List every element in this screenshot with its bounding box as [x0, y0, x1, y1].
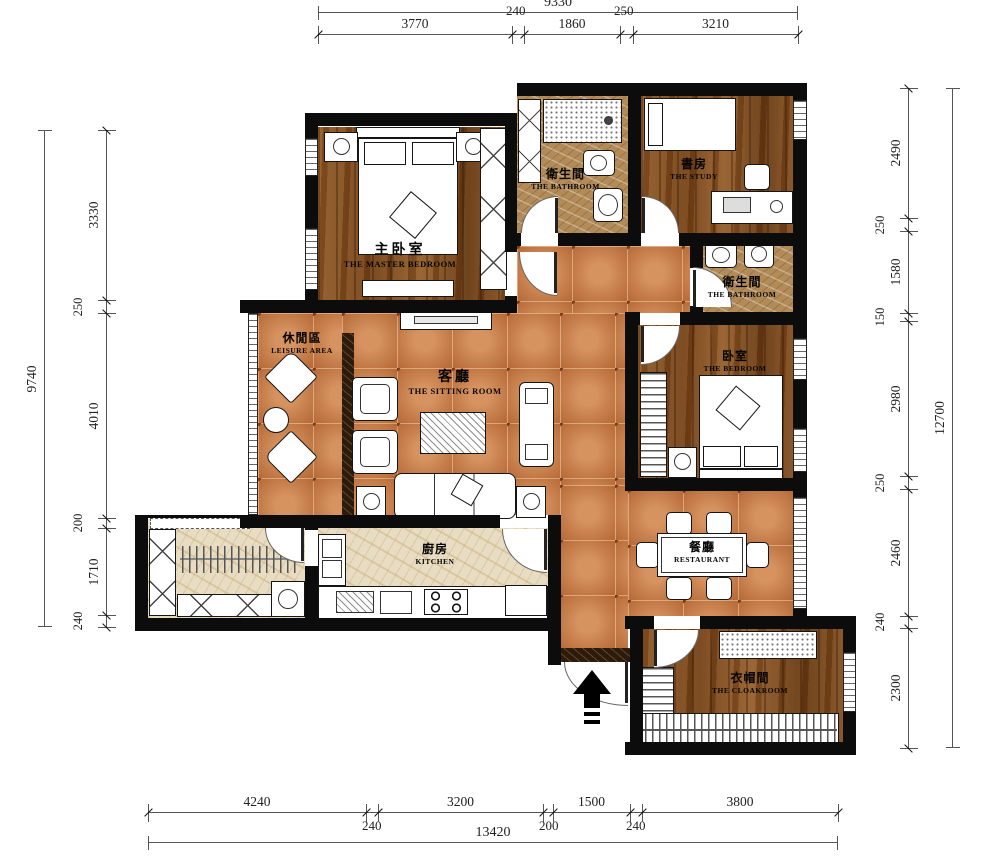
dim-value: 13420 — [476, 825, 511, 841]
pillow-icon — [412, 142, 454, 165]
dim-value: 3200 — [447, 794, 474, 810]
lamp-icon — [523, 493, 540, 510]
dim-value: 3330 — [86, 202, 102, 229]
wall-segment — [793, 380, 807, 428]
dining-chair-icon — [666, 577, 692, 600]
bench-icon — [362, 280, 454, 297]
wall-segment — [690, 246, 703, 268]
dim-bottom-total: 13420 — [148, 842, 838, 843]
room-label-sitting-room: 客廳 THE SITTING ROOM — [385, 370, 525, 397]
wall-segment — [625, 616, 654, 629]
pillow-icon — [648, 103, 663, 146]
dim-bottom-chain: 4240 240 3200 200 1500 240 3800 — [148, 812, 838, 813]
washer-drum — [278, 589, 298, 609]
dim-value: 150 — [873, 308, 888, 327]
clothes-rod — [639, 729, 837, 731]
arrow-stripe — [584, 716, 600, 720]
dim-value: 1500 — [578, 794, 605, 810]
wall-segment — [548, 528, 561, 665]
dim-value: 1580 — [888, 259, 904, 286]
entrance-arrow-icon — [573, 670, 611, 694]
window — [843, 652, 856, 712]
wardrobe-icon — [640, 372, 667, 477]
dim-right-total: 12700 — [952, 88, 953, 748]
room-label-master-bedroom: 主卧室 THE MASTER BEDROOM — [330, 243, 470, 270]
sink-basin — [712, 247, 730, 263]
room-label-restaurant: 餐廳 RESTAURANT — [642, 541, 762, 564]
dim-value: 2300 — [888, 675, 904, 702]
shelf-icon — [150, 518, 250, 529]
floor-corridor-lower — [560, 485, 628, 652]
dim-left-total: 9740 — [44, 130, 45, 627]
fridge-icon — [505, 585, 547, 616]
dim-value: 200 — [539, 818, 559, 834]
cabinet-icon — [149, 529, 176, 616]
balcony-window — [793, 497, 807, 609]
window — [793, 100, 807, 140]
dim-value: 3210 — [702, 16, 729, 32]
wall-segment — [240, 300, 305, 313]
wall-segment — [548, 515, 561, 528]
chaise-cushion — [525, 388, 548, 404]
dim-value: 250 — [614, 3, 634, 19]
window — [793, 338, 807, 380]
room-label-bathroom-top: 衛生間 THE BATHROOM — [508, 168, 623, 191]
dim-value: 250 — [873, 473, 888, 492]
laptop-icon — [723, 197, 751, 213]
entry-threshold — [561, 648, 630, 662]
dim-value: 200 — [71, 514, 86, 533]
stove-icon — [424, 589, 468, 615]
wall-segment — [305, 300, 517, 313]
wall-segment — [305, 176, 318, 228]
window — [793, 428, 807, 472]
tv-icon — [414, 316, 478, 324]
bed-headboard — [356, 127, 460, 138]
wall-segment — [135, 515, 240, 518]
side-table-icon — [263, 407, 289, 433]
wall-segment — [517, 233, 521, 246]
dim-value: 12700 — [932, 401, 948, 435]
wall-segment — [625, 312, 640, 325]
wall-segment — [625, 478, 807, 491]
cushion — [360, 437, 390, 467]
room-label-study: 書房 THE STUDY — [634, 158, 754, 181]
wall-segment — [625, 325, 638, 490]
clothes-rack-icon — [639, 667, 674, 717]
dim-value: 2490 — [888, 140, 904, 167]
dim-value: 1860 — [559, 16, 586, 32]
room-label-kitchen: 廚房 KITCHEN — [375, 543, 495, 566]
dim-value: 240 — [71, 612, 86, 631]
dining-chair-icon — [666, 512, 692, 535]
kitchen-sink-icon — [380, 591, 412, 614]
lamp-icon — [363, 493, 380, 510]
wall-segment — [843, 616, 856, 652]
dim-left-chain: 3330 250 4010 200 1710 240 — [106, 130, 107, 627]
entrance-arrow-shaft — [584, 694, 600, 724]
dim-value: 1710 — [86, 558, 102, 585]
pillar — [342, 333, 354, 515]
dining-chair-icon — [706, 577, 732, 600]
shower-head-icon — [604, 116, 613, 125]
dim-value: 9740 — [24, 365, 40, 392]
dim-value: 250 — [873, 215, 888, 234]
wall-segment — [517, 83, 807, 96]
window — [305, 138, 318, 176]
window — [305, 228, 318, 290]
toilet-bowl — [751, 246, 767, 262]
dim-value: 240 — [362, 818, 382, 834]
wall-segment — [700, 616, 856, 629]
desk-lamp-icon — [770, 200, 783, 213]
rug-icon — [420, 412, 486, 454]
cabinet-icon — [177, 594, 272, 617]
wardrobe-icon — [480, 128, 507, 290]
dim-top-chain: 3770 240 1860 250 3210 — [318, 34, 798, 35]
lamp-icon — [333, 138, 350, 155]
dim-value: 3770 — [402, 16, 429, 32]
fan-icon — [674, 453, 691, 470]
dim-value: 240 — [626, 818, 646, 834]
wall-segment — [505, 296, 517, 313]
sink-basin — [598, 194, 618, 216]
wall-segment — [135, 515, 148, 631]
wall-segment — [793, 83, 807, 100]
room-label-bathroom-right: 衛生間 THE BATHROOM — [682, 276, 802, 299]
dining-chair-icon — [706, 512, 732, 535]
dim-value: 240 — [873, 613, 888, 632]
wall-segment — [630, 616, 643, 755]
dim-value: 240 — [506, 3, 526, 19]
pillow-icon — [744, 446, 778, 467]
chaise-cushion — [525, 444, 548, 460]
wall-segment — [305, 113, 517, 126]
wall-segment — [680, 312, 807, 325]
cutting-board-icon — [336, 591, 374, 613]
wall-segment — [305, 515, 318, 530]
shoe-cabinet-icon — [719, 631, 817, 659]
wall-segment — [135, 618, 561, 631]
dim-top-total: 9330 — [318, 12, 798, 13]
dim-value: 250 — [71, 297, 86, 316]
floor-plan: 主卧室 THE MASTER BEDROOM 衛生間 THE BATHROOM … — [0, 0, 1000, 857]
pillow-icon — [364, 142, 406, 165]
kitchen-sink-icon — [322, 560, 342, 578]
wall-segment — [240, 515, 500, 528]
wall-segment — [305, 113, 318, 138]
room-label-cloakroom: 衣帽間 THE CLOAKROOM — [690, 672, 810, 695]
dim-right-chain: 2490 250 1580 150 2980 250 2460 240 2300 — [908, 88, 909, 748]
dim-value: 4240 — [244, 794, 271, 810]
kitchen-sink-icon — [322, 539, 342, 558]
arrow-stripe — [584, 708, 600, 712]
pillow-icon — [703, 446, 741, 467]
floor-corridor-mid — [560, 313, 625, 485]
room-label-leisure-area: 休閒區 LEISURE AREA — [242, 332, 362, 355]
room-label-bedroom: 卧室 THE BEDROOM — [675, 350, 795, 373]
dim-value: 3800 — [727, 794, 754, 810]
wall-segment — [679, 233, 807, 246]
dim-value: 4010 — [86, 402, 102, 429]
dim-value: 2980 — [888, 385, 904, 412]
dim-value: 9330 — [544, 0, 572, 11]
wall-segment — [625, 742, 856, 755]
dim-value: 2460 — [888, 539, 904, 566]
